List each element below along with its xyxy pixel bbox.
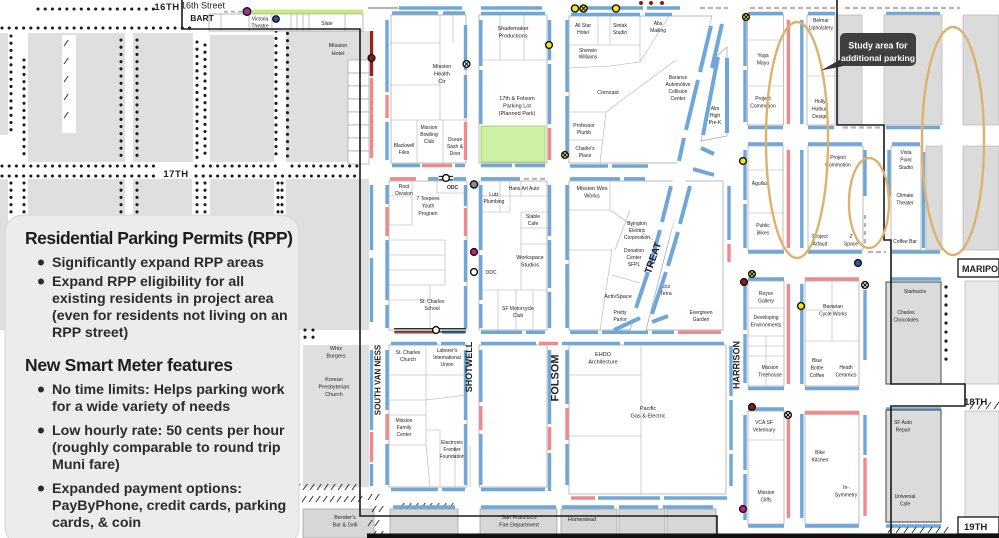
svg-text:Bender'sBar & Grill: Bender'sBar & Grill	[332, 515, 357, 529]
svg-text:SF AutoRepair: SF AutoRepair	[894, 420, 912, 434]
svg-text:DevelopingEnvironments: DevelopingEnvironments	[751, 315, 782, 329]
svg-text:16TH: 16TH	[154, 2, 179, 13]
svg-text:San FranciscoFire Department: San FranciscoFire Department	[499, 515, 539, 529]
svg-text:SHOTWELL: SHOTWELL	[464, 341, 474, 392]
svg-text:ActivSpace: ActivSpace	[604, 294, 632, 300]
svg-text:VCA SFVeterinary: VCA SFVeterinary	[753, 420, 776, 434]
svg-text:(even for residents not living: (even for residents not living on an	[52, 308, 288, 324]
svg-text:EvergreenGarden: EvergreenGarden	[689, 310, 712, 323]
svg-text:No time limits: Helps parking: No time limits: Helps parking work	[52, 382, 285, 398]
svg-text:RPP street): RPP street)	[52, 325, 128, 341]
svg-text:Expand RPP eligibility for all: Expand RPP eligibility for all	[52, 274, 244, 290]
svg-text:19TH: 19TH	[964, 522, 987, 533]
svg-text:for a wide variety of needs: for a wide variety of needs	[52, 399, 230, 415]
svg-text:MissionFamilyCenter: MissionFamilyCenter	[396, 418, 413, 438]
svg-text:cards, & coin: cards, & coin	[52, 515, 141, 531]
svg-text:Significantly expand RPP areas: Significantly expand RPP areas	[52, 255, 264, 271]
svg-text:ShademakerProductions: ShademakerProductions	[497, 26, 528, 40]
svg-text:ODC: ODC	[447, 185, 459, 191]
svg-text:existing residents in project: existing residents in project area	[52, 291, 274, 307]
svg-text:SherwinWilliams: SherwinWilliams	[579, 48, 598, 61]
svg-text:Coffee Bar: Coffee Bar	[893, 239, 917, 245]
svg-text:BART: BART	[190, 13, 214, 23]
svg-text:Agullas: Agullas	[752, 181, 769, 187]
svg-text:ClimateTheater: ClimateTheater	[896, 193, 914, 207]
svg-text:FOLSOM: FOLSOM	[550, 354, 562, 401]
svg-text:(roughly comparable to round t: (roughly comparable to round trip	[52, 440, 281, 456]
svg-text:Expanded payment options:: Expanded payment options:	[52, 481, 242, 497]
svg-text:Homestead: Homestead	[568, 517, 596, 523]
svg-text:Low hourly rate: 50 cents per: Low hourly rate: 50 cents per hour	[52, 423, 285, 439]
svg-text:SOUTH VAN NESS: SOUTH VAN NESS	[374, 344, 383, 415]
svg-text:17th & FolsomParking Lot(Plann: 17th & FolsomParking Lot(Planned Park)	[499, 96, 536, 117]
svg-text:PublicBikes: PublicBikes	[756, 223, 770, 237]
svg-text:additional parking: additional parking	[841, 53, 915, 63]
svg-text:18TH: 18TH	[964, 397, 987, 408]
svg-text:RoyceGallery: RoyceGallery	[758, 291, 774, 305]
svg-text:17TH: 17TH	[163, 169, 188, 180]
svg-text:PayByPhone, credit cards, park: PayByPhone, credit cards, parking	[52, 498, 286, 514]
svg-text:Comcast: Comcast	[597, 90, 619, 96]
svg-text:16th Street: 16th Street	[181, 1, 226, 11]
svg-text:VistaPointStudio: VistaPointStudio	[899, 150, 913, 171]
svg-text:HARRISON: HARRISON	[732, 341, 742, 389]
svg-text:Hans Art Auto: Hans Art Auto	[509, 186, 540, 192]
svg-text:ODC: ODC	[485, 270, 497, 276]
svg-text:Residential Parking Permits (R: Residential Parking Permits (RPP)	[25, 228, 292, 248]
svg-text:MARIPOSA: MARIPOSA	[962, 264, 999, 274]
svg-text:New Smart Meter features: New Smart Meter features	[25, 355, 233, 375]
svg-text:Slate: Slate	[321, 21, 333, 27]
svg-text:YogaMayu: YogaMayu	[757, 53, 769, 67]
svg-text:Starbucks: Starbucks	[904, 289, 927, 295]
svg-text:Study area for: Study area for	[848, 41, 908, 51]
svg-text:PrettyParlor: PrettyParlor	[613, 310, 627, 323]
svg-text:VictoriaTheatre: VictoriaTheatre	[251, 17, 268, 30]
svg-text:Muni fare): Muni fare)	[52, 457, 120, 473]
svg-text:StableCafe: StableCafe	[526, 214, 540, 227]
svg-text:SintakStudio: SintakStudio	[613, 23, 628, 36]
